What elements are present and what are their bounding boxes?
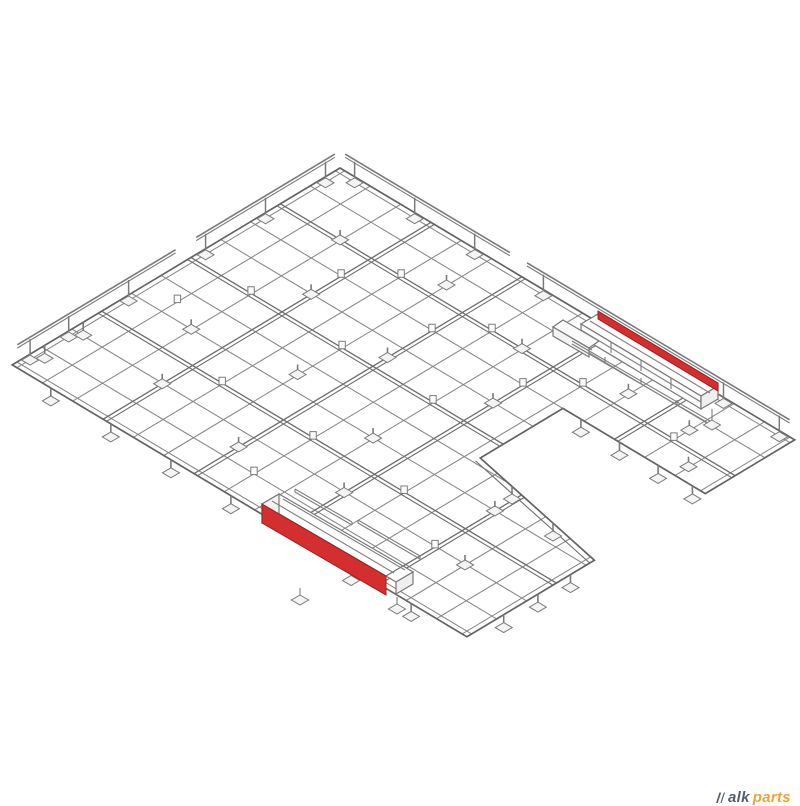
drawing-canvas: alkparts bbox=[0, 0, 800, 800]
cad-isometric-drawing bbox=[0, 0, 800, 800]
watermark-text-dark: alk bbox=[728, 789, 750, 806]
watermark-icon bbox=[714, 791, 725, 804]
guardrail-top-right bbox=[345, 154, 789, 442]
watermark-logo: alkparts bbox=[714, 789, 791, 806]
watermark-text-accent: parts bbox=[753, 789, 791, 806]
